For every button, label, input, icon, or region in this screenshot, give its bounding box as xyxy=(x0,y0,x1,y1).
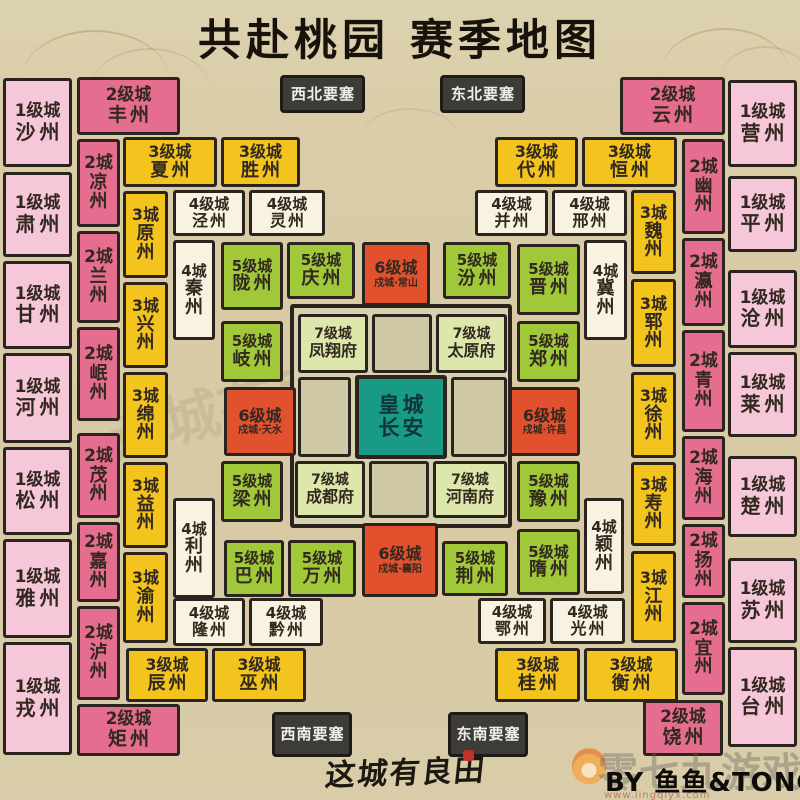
city-cell-level3: 3级城夏州 xyxy=(123,137,217,187)
city-cell-level1: 1级城沙州 xyxy=(3,78,72,167)
imperial-city-cell: 皇城长安 xyxy=(355,375,447,459)
city-cell-level3: 3城绵州 xyxy=(123,372,168,458)
city-cell-level2: 2城宜州 xyxy=(682,602,725,695)
city-cell-level1: 1级城楚州 xyxy=(728,456,797,537)
city-cell-level4: 4级城鄂州 xyxy=(478,598,546,644)
city-cell-level3: 3城徐州 xyxy=(631,372,676,458)
garrison-city-cell: 6级城戍城·常山 xyxy=(362,242,430,306)
city-cell-level1: 1级城河州 xyxy=(3,353,72,443)
city-cell-level2: 2城泸州 xyxy=(77,606,120,700)
city-cell-level5: 5级城万州 xyxy=(288,540,356,597)
city-cell-level3: 3级城衡州 xyxy=(584,648,678,702)
city-cell-level5: 5级城汾州 xyxy=(443,242,511,299)
city-cell-level3: 3城原州 xyxy=(123,191,168,278)
city-cell-level5: 5级城巴州 xyxy=(224,540,284,597)
prefecture-city-cell: 7级城太原府 xyxy=(436,314,507,373)
city-cell-level1: 1级城营州 xyxy=(728,80,797,167)
inner-ring-slot xyxy=(451,377,507,457)
city-cell-level2: 2级城丰州 xyxy=(77,77,180,135)
city-cell-level2: 2城凉州 xyxy=(77,139,120,227)
city-cell-level5: 5级城梁州 xyxy=(221,461,283,522)
author-credit: BY 鱼鱼&TONG xyxy=(605,762,800,799)
city-cell-level2: 2城岷州 xyxy=(77,327,120,421)
city-cell-level5: 5级城岐州 xyxy=(221,321,283,382)
city-cell-level4: 4级城泾州 xyxy=(173,190,245,236)
inner-ring-slot xyxy=(369,461,429,518)
city-cell-level3: 3级城代州 xyxy=(495,137,578,187)
red-seal-icon xyxy=(463,750,474,761)
prefecture-city-cell: 7级城成都府 xyxy=(295,461,365,518)
city-cell-level5: 5级城豫州 xyxy=(517,461,580,522)
city-cell-level4: 4级城灵州 xyxy=(249,190,325,236)
city-cell-level5: 5级城荆州 xyxy=(442,541,508,596)
season-map: 共赴桃园 赛季地图 这城有良田 7级城凤翔府7级城太原府7级城成都府7级城河南府… xyxy=(0,0,800,800)
garrison-city-cell: 6级城戍城·襄阳 xyxy=(362,523,438,597)
city-cell-level2: 2城幽州 xyxy=(682,139,725,234)
city-cell-level4: 4城冀州 xyxy=(584,240,627,340)
city-cell-level3: 3城益州 xyxy=(123,462,168,548)
city-cell-level3: 3城江州 xyxy=(631,551,676,643)
city-cell-level4: 4级城光州 xyxy=(550,598,625,644)
garrison-city-cell: 6级城戍城·天水 xyxy=(224,387,296,456)
city-cell-level1: 1级城平州 xyxy=(728,176,797,252)
city-cell-level3: 3级城辰州 xyxy=(126,648,208,702)
city-cell-level1: 1级城戎州 xyxy=(3,642,72,755)
city-cell-level4: 4级城黔州 xyxy=(249,598,323,646)
fortress-cell: 西北要塞 xyxy=(280,75,365,113)
city-cell-level2: 2城茂州 xyxy=(77,433,120,518)
city-cell-level2: 2级城矩州 xyxy=(77,704,180,756)
city-cell-level1: 1级城莱州 xyxy=(728,352,797,437)
city-cell-level2: 2城兰州 xyxy=(77,231,120,323)
prefecture-city-cell: 7级城凤翔府 xyxy=(298,314,368,373)
city-cell-level1: 1级城苏州 xyxy=(728,558,797,643)
city-cell-level3: 3城寿州 xyxy=(631,462,676,546)
city-cell-level2: 2城海州 xyxy=(682,436,725,520)
city-cell-level5: 5级城庆州 xyxy=(287,242,355,299)
inner-ring-slot xyxy=(372,314,432,373)
city-cell-level4: 4级城并州 xyxy=(475,190,548,236)
city-cell-level3: 3城渝州 xyxy=(123,552,168,643)
city-cell-level5: 5级城陇州 xyxy=(221,242,283,310)
garrison-city-cell: 6级城戍城·许昌 xyxy=(509,387,580,456)
city-cell-level3: 3级城桂州 xyxy=(495,648,580,702)
city-cell-level1: 1级城台州 xyxy=(728,647,797,747)
city-cell-level2: 2城青州 xyxy=(682,330,725,432)
city-cell-level3: 3城魏州 xyxy=(631,190,676,274)
inner-ring-slot xyxy=(298,377,351,457)
city-cell-level3: 3级城恒州 xyxy=(582,137,677,187)
city-cell-level5: 5级城隋州 xyxy=(517,529,580,595)
city-cell-level1: 1级城肃州 xyxy=(3,172,72,257)
fortress-cell: 东北要塞 xyxy=(440,75,525,113)
city-cell-level1: 1级城雅州 xyxy=(3,539,72,638)
city-cell-level2: 2级城云州 xyxy=(620,77,725,135)
city-cell-level4: 4城秦州 xyxy=(173,240,215,340)
city-cell-level1: 1级城沧州 xyxy=(728,270,797,348)
city-cell-level3: 3城兴州 xyxy=(123,282,168,368)
city-cell-level4: 4城利州 xyxy=(173,498,215,598)
city-cell-level4: 4级城隆州 xyxy=(173,598,245,646)
city-cell-level5: 5级城郑州 xyxy=(517,321,580,382)
city-cell-level4: 4城颖州 xyxy=(584,498,624,594)
city-cell-level3: 3级城巫州 xyxy=(212,648,306,702)
prefecture-city-cell: 7级城河南府 xyxy=(433,461,507,518)
page-title: 共赴桃园 赛季地图 xyxy=(0,6,800,68)
city-cell-level5: 5级城晋州 xyxy=(517,244,580,315)
city-cell-level3: 3级城胜州 xyxy=(221,137,300,187)
city-cell-level1: 1级城松州 xyxy=(3,447,72,535)
city-cell-level2: 2城瀛州 xyxy=(682,238,725,326)
city-cell-level2: 2城扬州 xyxy=(682,524,725,598)
city-cell-level3: 3城郓州 xyxy=(631,279,676,367)
city-cell-level2: 2城嘉州 xyxy=(77,522,120,602)
city-cell-level4: 4级城邢州 xyxy=(552,190,627,236)
city-cell-level1: 1级城甘州 xyxy=(3,261,72,349)
